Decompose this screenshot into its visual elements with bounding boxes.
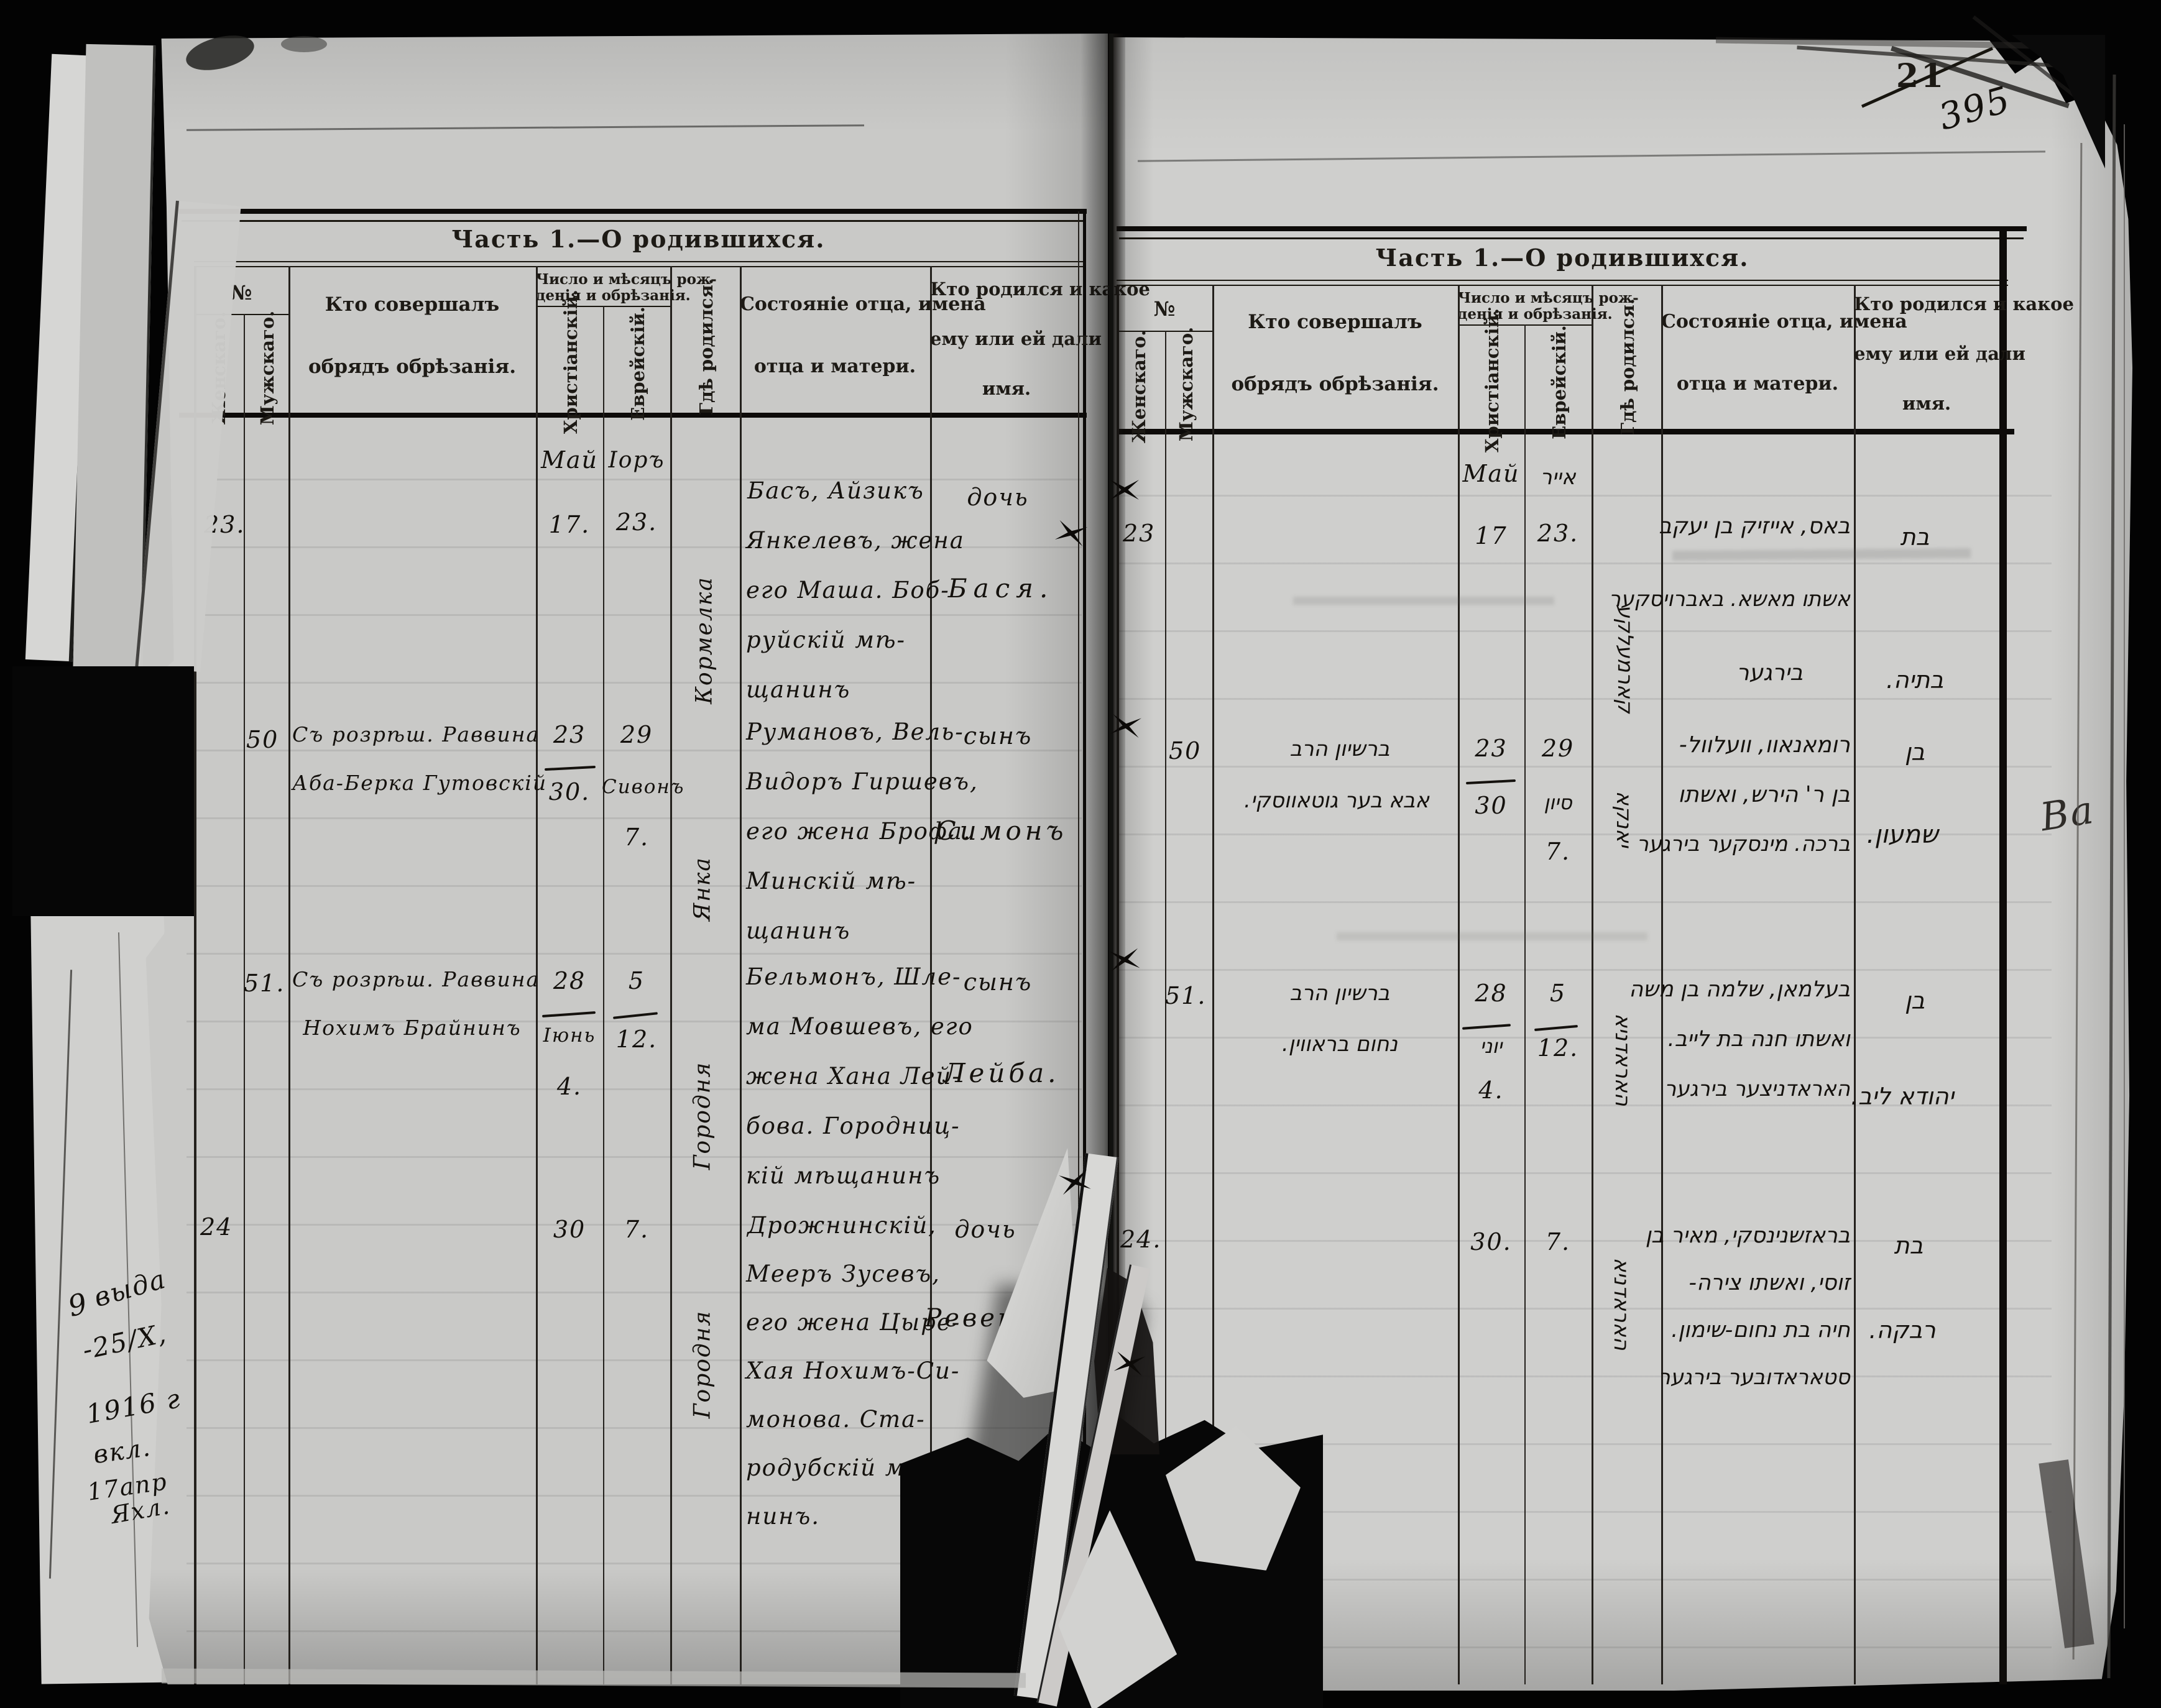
- father-entry-line: Мееръ Зусевъ,: [746, 1260, 941, 1287]
- table-border: [1117, 226, 2027, 231]
- father-entry-line: Видоръ Гиршевъ,: [746, 768, 979, 795]
- column-header-who-1: Кто совершалъ: [1212, 311, 1458, 333]
- table-border: [182, 220, 1084, 222]
- column-header-dates-1: Число и мѣсяцъ рож-: [1458, 290, 1592, 306]
- circumcision-date-jewish: 12.: [603, 1026, 670, 1053]
- column-header-who-2: обрядъ обрѣзанія.: [1212, 373, 1458, 395]
- father-entry-line: זוסי, ואשתו צירה-: [1666, 1270, 1850, 1295]
- column-header-jewish: Еврейскій.: [627, 306, 648, 421]
- birthplace: האראדניא: [1609, 1257, 1634, 1350]
- circumcision-date-jewish: 7.: [1524, 838, 1592, 865]
- column-header-name-1: Кто родился и какое: [930, 278, 1083, 300]
- father-entry-line: Дрожнинскій,: [747, 1212, 937, 1239]
- column-header-jewish: Еврейскій.: [1549, 325, 1570, 439]
- father-entry-line: בעלמאן, שלמה בן משה: [1666, 977, 1850, 1002]
- circumciser: נחום בראווין.: [1225, 1032, 1455, 1057]
- birthplace: Кормелка: [692, 576, 717, 704]
- margin-scribble: Ba: [2037, 787, 2098, 840]
- circumciser: אבא בער גוטאווסקי.: [1219, 788, 1455, 813]
- column-header-father-2: отца и матери.: [1661, 373, 1854, 395]
- father-entry-line: אשתו מאשא. באברויסקער: [1661, 587, 1850, 612]
- circumciser: Нохимъ Брайнинъ: [292, 1016, 532, 1040]
- father-entry-line: Минскій мѣ-: [746, 868, 916, 894]
- birthplace: האראדניא: [1610, 1013, 1635, 1106]
- birth-date-jewish: 5: [1524, 980, 1592, 1007]
- circumciser: ברשיון הרב: [1231, 981, 1449, 1006]
- circumcision-date-christian: 30.: [536, 778, 603, 806]
- record-number: 24.: [1120, 1226, 1161, 1253]
- birth-date-christian: 30: [536, 1216, 603, 1243]
- child-name: Лейба.: [930, 1058, 1073, 1088]
- circumcision-date-jewish: 7.: [603, 824, 670, 851]
- circumcision-date-christian: 4.: [536, 1073, 603, 1100]
- birthplace: יאנקא: [1611, 791, 1636, 848]
- father-entry-line: Бельмонъ, Шле-: [746, 963, 961, 990]
- father-entry-line: бова. Городниц-: [746, 1113, 961, 1139]
- child-sex: בת: [1859, 523, 1971, 551]
- circumciser: Съ розрѣш. Раввина: [292, 967, 532, 991]
- table-border: [194, 261, 1083, 262]
- child-sex: сынъ: [933, 722, 1063, 750]
- circumcision-date-christian: 30: [1458, 792, 1524, 819]
- child-sex: дочь: [933, 484, 1063, 511]
- father-entry-line: кій мѣщанинъ: [746, 1162, 941, 1189]
- child-name: Бася.: [933, 573, 1069, 604]
- column-header-name-1: Кто родился и какое: [1854, 293, 1999, 315]
- scanned-register-spread: Часть 1.—О родившихся. № Женскаго. Мужск…: [0, 0, 2161, 1708]
- column-header-father-1: Состояніе отца, имена: [1661, 311, 1854, 333]
- column-header-christian: Христіанскій.: [1481, 308, 1503, 452]
- father-entry-line: Хая Нохимъ-Си-: [746, 1357, 960, 1384]
- circumciser: ברשיון הרב: [1231, 737, 1449, 761]
- table-border: [1854, 285, 1856, 1684]
- father-entry-line: его Маша. Боб-: [746, 577, 950, 604]
- father-entry-line: щанинъ: [746, 676, 850, 703]
- ink-stain: [281, 36, 327, 52]
- column-header-where: Гдѣ родился.: [696, 278, 717, 415]
- record-number: 51.: [244, 970, 285, 997]
- birth-date-jewish: 29: [603, 721, 670, 748]
- birth-date-jewish: 7.: [1524, 1228, 1592, 1256]
- birth-date-jewish: 23.: [603, 508, 670, 536]
- birth-date-christian: 30.: [1458, 1228, 1524, 1256]
- table-border: [1119, 237, 2024, 239]
- child-sex: בן: [1859, 738, 1971, 766]
- ink-bleed: [1337, 932, 1647, 940]
- father-entry-line: ма Мовшевъ, его: [746, 1013, 974, 1040]
- table-border: [288, 266, 290, 1684]
- column-header-name-2: ему или ей дали: [1854, 343, 1999, 364]
- table-border: [670, 266, 672, 1684]
- column-header-who-2: обрядъ обрѣзанія.: [288, 356, 536, 378]
- birth-date-christian: 23: [1458, 735, 1524, 762]
- child-name: יהודא ליב.: [1828, 1083, 1977, 1110]
- circumciser: Аба-Берка Гутовскій: [292, 771, 532, 795]
- child-name: Симонъ: [930, 815, 1073, 846]
- birth-date-jewish: 5: [603, 967, 670, 994]
- father-entry-line: בן ר' הירש, ואשתו: [1666, 782, 1850, 807]
- birth-date-jewish: 7.: [603, 1216, 670, 1243]
- page-title-right: Часть 1.—О родившихся.: [1117, 244, 2008, 272]
- table-border: [1999, 231, 2007, 1684]
- table-border: [1117, 285, 2008, 286]
- table-border: [179, 209, 1087, 214]
- column-header-dates-2: денія и обрѣзанія.: [1458, 306, 1592, 323]
- father-entry-line: ואשתו חנה בת לייב.: [1666, 1027, 1850, 1052]
- father-entry-line: סטאראדובער בירגער: [1657, 1365, 1850, 1390]
- column-header-who-1: Кто совершалъ: [288, 293, 536, 316]
- record-number: 24: [200, 1213, 233, 1241]
- table-border: [1592, 285, 1593, 1684]
- father-entry-line: Янкелевъ, жена: [746, 527, 965, 554]
- ink-bleed: [1293, 597, 1554, 605]
- birth-date-christian: 28: [1458, 980, 1524, 1007]
- father-entry-line: Басъ, Айзикъ: [747, 477, 924, 504]
- birth-date-christian: 28: [536, 967, 603, 994]
- record-number: 23: [1123, 520, 1155, 547]
- birth-date-jewish: 29: [1524, 735, 1592, 762]
- circumcision-date-jewish: 12.: [1524, 1034, 1592, 1062]
- birthplace: Городня: [690, 1310, 716, 1419]
- christian-month: Іюнь: [535, 1024, 604, 1047]
- father-entry-line: Румановъ, Вель-: [746, 719, 964, 745]
- table-border: [194, 266, 1083, 267]
- column-header-where: Гдѣ родился.: [1617, 298, 1638, 435]
- column-header-dates-1: Число и мѣсяцъ рож-: [536, 271, 670, 288]
- child-name: רבקה.: [1834, 1316, 1971, 1344]
- column-header-dates-2: денія и обрѣзанія.: [536, 287, 670, 304]
- table-border: [1117, 280, 2008, 281]
- month-jewish: Іоръ: [603, 448, 670, 473]
- circumcision-date-christian: 4.: [1458, 1077, 1524, 1104]
- jewish-month: סיון: [1524, 791, 1592, 814]
- child-name: שמעון.: [1840, 820, 1965, 849]
- child-sex: дочь: [920, 1216, 1051, 1243]
- crease-line: [2124, 124, 2125, 1628]
- birth-date-christian: 17.: [536, 511, 603, 538]
- father-entry-line: רומאנאוו, וועלוול-: [1666, 732, 1850, 758]
- month-christian: Май: [536, 446, 603, 474]
- page-title-left: Часть 1.—О родившихся.: [194, 225, 1083, 253]
- column-header-male: Мужскаго.: [257, 311, 278, 426]
- child-sex: בת: [1853, 1232, 1965, 1259]
- father-entry-line: האראדניצער בירגער: [1654, 1077, 1850, 1101]
- column-header-name-2: ему или ей дали: [930, 328, 1083, 349]
- month-christian: Май: [1458, 460, 1524, 487]
- birth-date-christian: 23: [536, 721, 603, 748]
- column-header-christian: Христіанскій.: [560, 290, 581, 434]
- column-header-father-1: Состояніе отца, имена: [740, 293, 930, 315]
- father-entry-line: жена Хана Лей-: [746, 1063, 961, 1090]
- birthplace: Янка: [690, 856, 716, 921]
- column-header-no: №: [1117, 297, 1212, 321]
- birth-date-jewish: 23.: [1524, 520, 1592, 547]
- birth-date-christian: 17: [1458, 522, 1524, 549]
- birthplace: Городня: [690, 1062, 716, 1170]
- month-jewish: אייר: [1524, 465, 1592, 490]
- column-header-female: Женскаго.: [1128, 330, 1150, 443]
- column-header-father-2: отца и матери.: [740, 356, 930, 377]
- father-entry-line: щанинъ: [746, 917, 850, 944]
- christian-month: יוני: [1458, 1034, 1524, 1058]
- father-entry-line: монова. Ста-: [746, 1406, 926, 1433]
- father-entry-line: באס, אייזיק בן יעקב: [1666, 513, 1850, 539]
- black-void: [12, 666, 194, 916]
- record-number: 51.: [1165, 982, 1206, 1009]
- father-entry-line: חיה בת נחום-שימון.: [1666, 1318, 1850, 1343]
- father-entry-line: בראזשנינסקי, מאיר בן: [1666, 1223, 1850, 1248]
- record-number: 50: [246, 726, 279, 753]
- circumciser: Съ розрѣш. Раввина: [292, 722, 532, 746]
- birthplace: קארמעלקע: [1613, 604, 1638, 713]
- father-entry-line: בירגער: [1679, 660, 1803, 686]
- father-entry-line: нинъ.: [746, 1503, 820, 1530]
- column-header-name-3: имя.: [1854, 393, 1999, 414]
- jewish-month: Сивонъ: [602, 776, 671, 798]
- child-sex: сынъ: [933, 968, 1063, 996]
- father-entry-line: ברכה. מינסקער בירגער: [1654, 832, 1850, 856]
- father-entry-line: руйскій мѣ-: [746, 627, 906, 653]
- column-header-name-3: имя.: [930, 378, 1083, 399]
- child-name: בתיה.: [1853, 666, 1977, 694]
- child-sex: בן: [1859, 987, 1971, 1014]
- column-header-male: Мужскаго.: [1176, 327, 1197, 442]
- table-border: [740, 266, 742, 1684]
- record-number: 50: [1169, 737, 1201, 764]
